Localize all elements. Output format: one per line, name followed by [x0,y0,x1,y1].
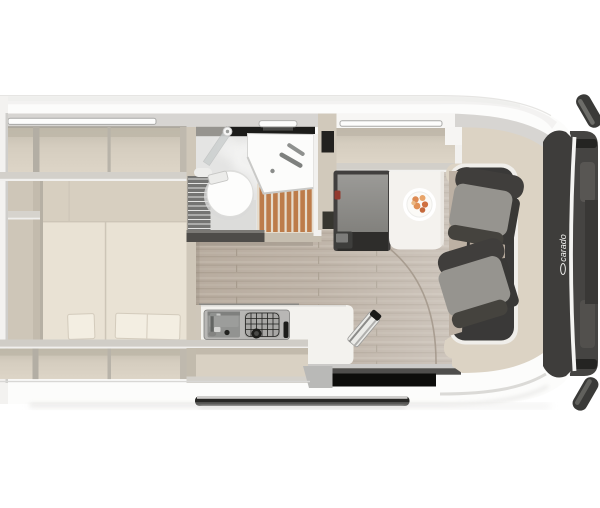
svg-text:carado: carado [558,234,568,262]
